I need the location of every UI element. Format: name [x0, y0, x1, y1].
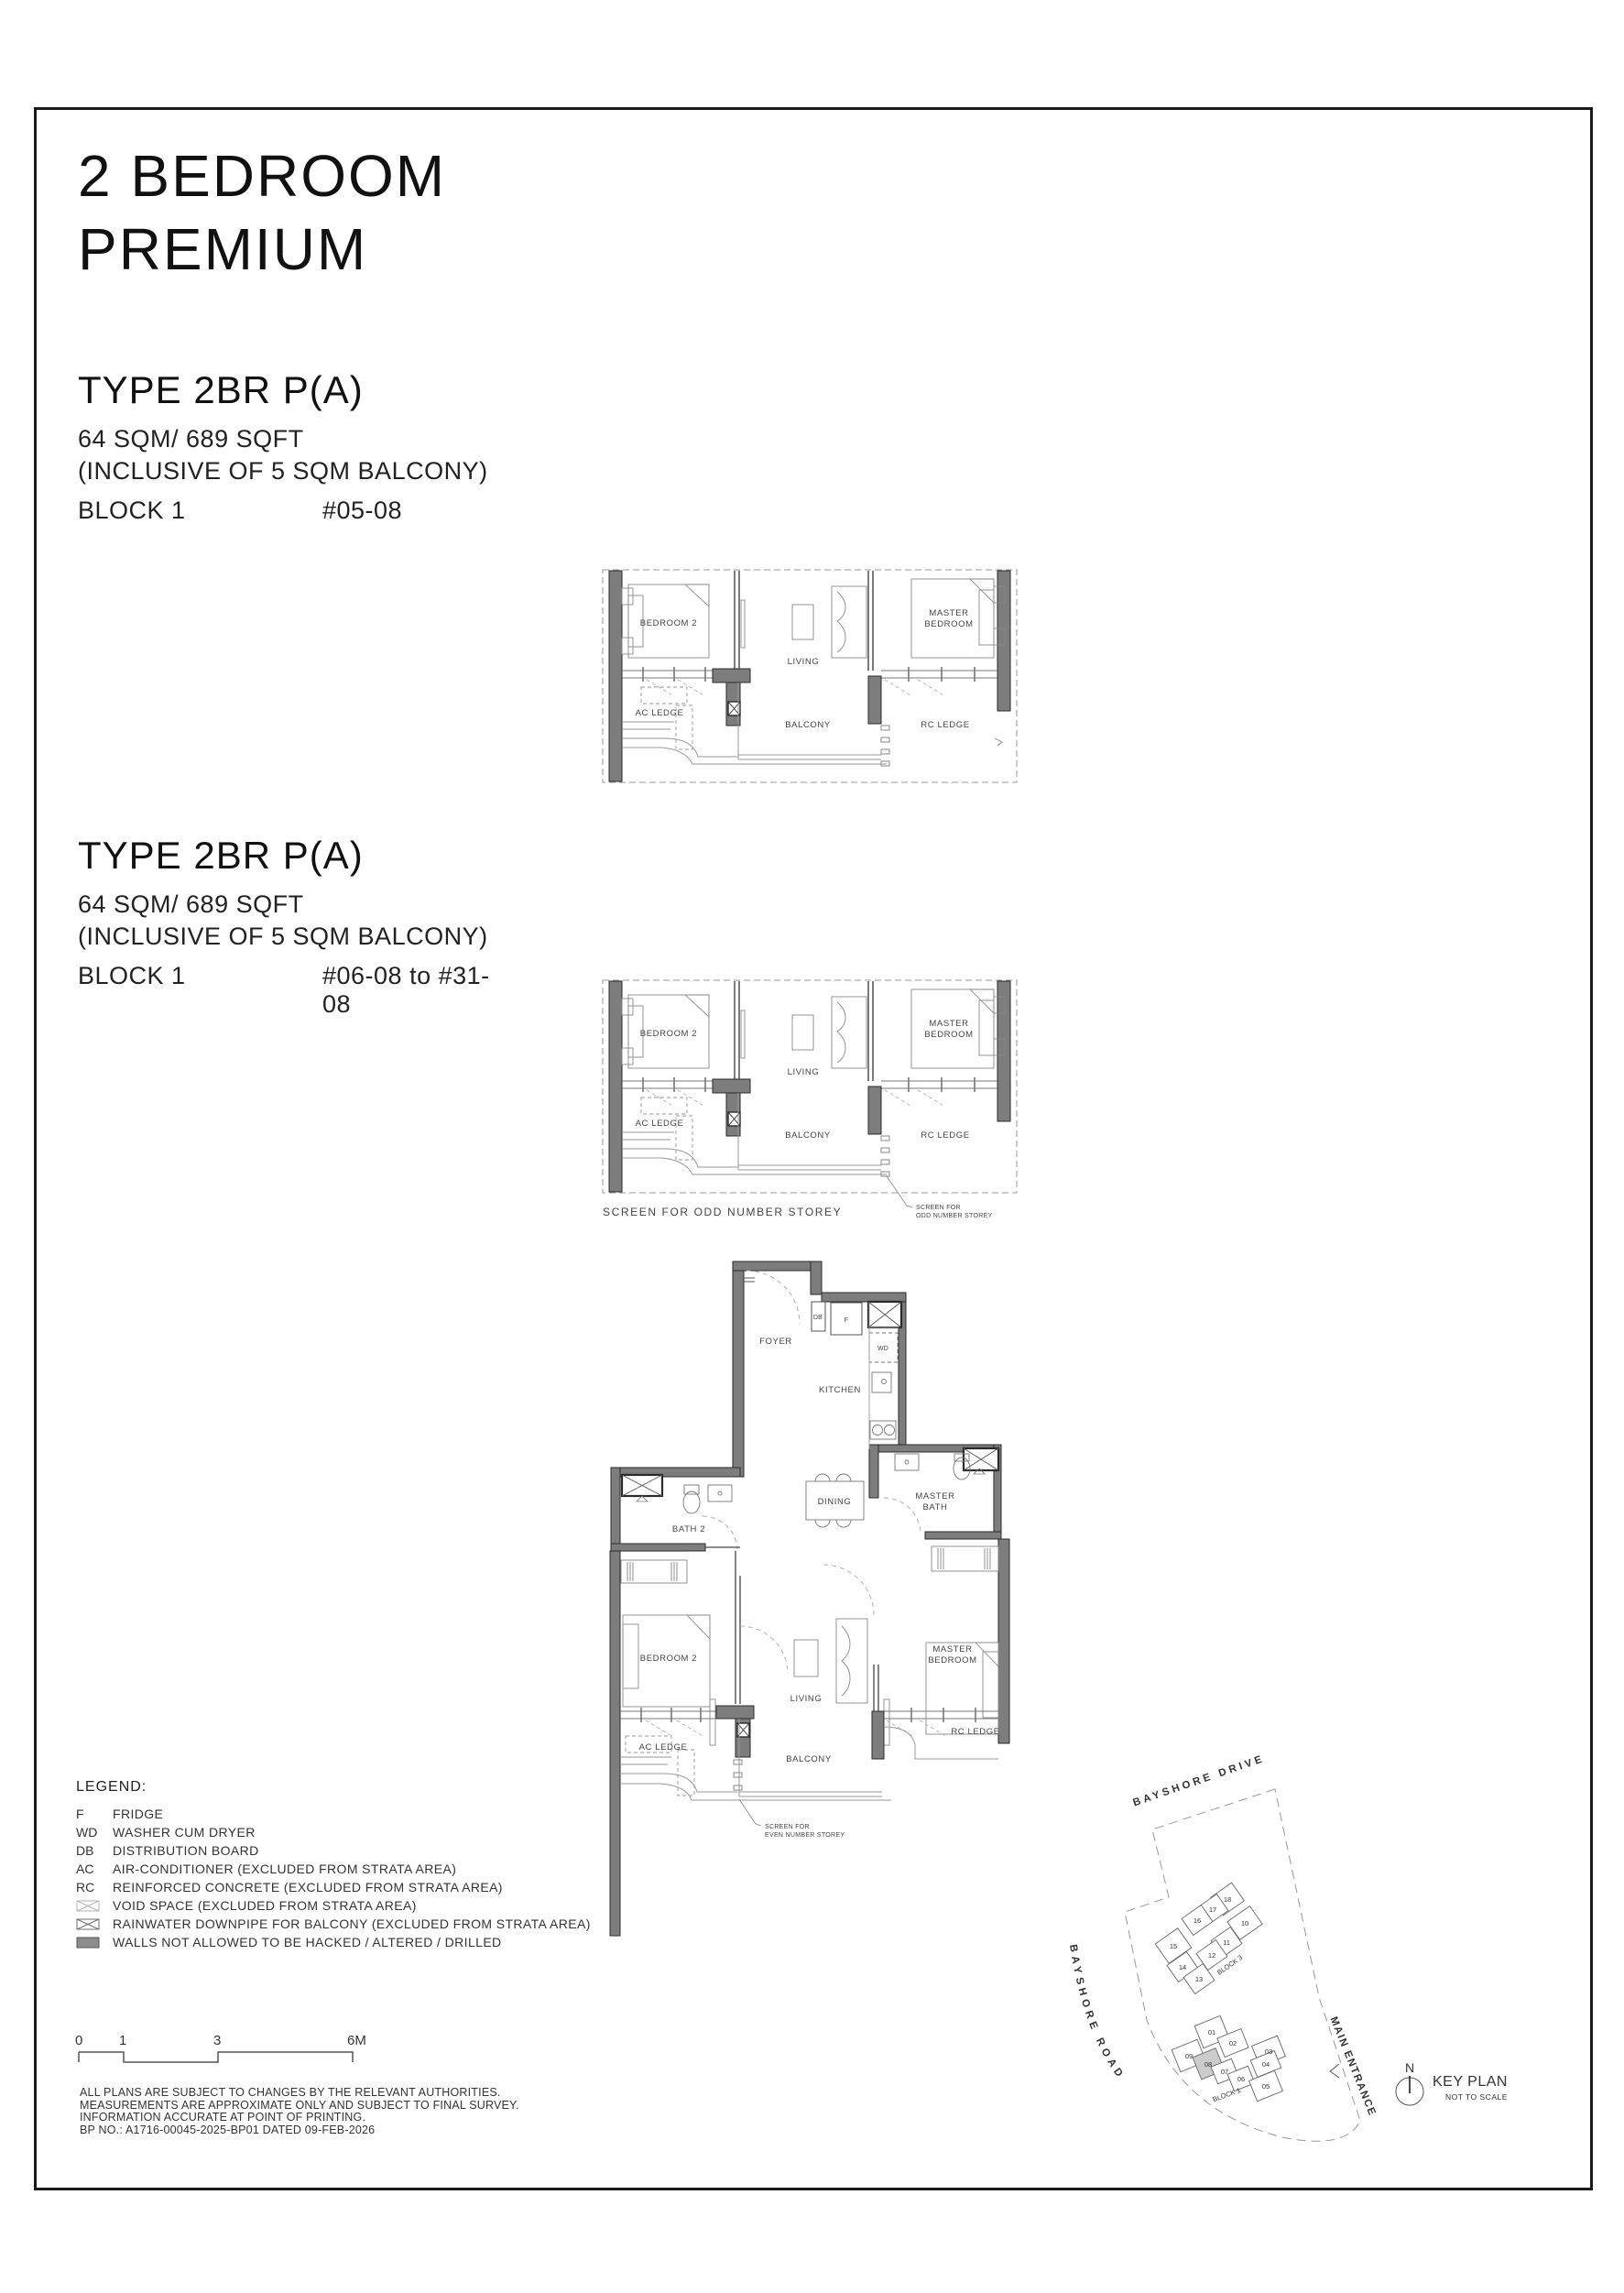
keyplan-subtitle: NOT TO SCALE: [1445, 2092, 1508, 2102]
legend-desc-walls: WALLS NOT ALLOWED TO BE HACKED / ALTERED…: [113, 1935, 502, 1949]
block1-label: BLOCK 1: [1212, 2086, 1242, 2103]
entrance-door-arc: [747, 1271, 800, 1324]
living-furniture: [741, 586, 866, 658]
legend-row-rc: RC REINFORCED CONCRETE (EXCLUDED FROM ST…: [76, 1878, 591, 1896]
plan2-ac-ledge-label: AC LEDGE: [636, 1119, 684, 1129]
scale-bar: 0 1 3 6M: [73, 2032, 376, 2072]
bath2-fixtures: [683, 1485, 737, 1549]
bayshore-drive-label: BAYSHORE DRIVE: [1131, 1753, 1266, 1809]
screen-leader-line: [887, 1176, 912, 1207]
scale-1: 1: [119, 2033, 126, 2048]
screen-ticks: [881, 1136, 889, 1176]
plan2-master-label2: BEDROOM: [924, 1030, 973, 1040]
master-bath-label1: MASTER: [915, 1491, 954, 1501]
plan1-living-label: LIVING: [788, 657, 820, 667]
main-bedroom2-label: BEDROOM 2: [640, 1654, 697, 1664]
partial-plan-05-08: BEDROOM 2 LIVING MASTER BEDROOM AC LEDGE…: [601, 568, 1019, 788]
plan1-balcony-label: BALCONY: [785, 720, 831, 730]
svg-text:09: 09: [1185, 2052, 1193, 2060]
disclaimer-line1: ALL PLANS ARE SUBJECT TO CHANGES BY THE …: [80, 2087, 519, 2100]
center-column: [713, 669, 750, 726]
svg-text:16: 16: [1193, 1916, 1201, 1925]
svg-text:17: 17: [1209, 1905, 1216, 1914]
main-master-label1: MASTER: [932, 1644, 972, 1654]
disclaimer: ALL PLANS ARE SUBJECT TO CHANGES BY THE …: [80, 2087, 519, 2136]
plan1-rc-ledge-label: RC LEDGE: [921, 720, 969, 730]
master-bath-label2: BATH: [922, 1502, 947, 1512]
type2-spec: TYPE 2BR P(A) 64 SQM/ 689 SQFT (INCLUSIV…: [78, 834, 499, 990]
plan1-master-label2: BEDROOM: [924, 619, 973, 629]
legend-desc-wd: WASHER CUM DRYER: [113, 1825, 256, 1840]
left-wall: [609, 981, 622, 1192]
ledge-outline: [622, 1093, 887, 1174]
screen-odd-caption: SCREEN FOR ODD NUMBER STOREY: [603, 1206, 842, 1218]
svg-text:15: 15: [1170, 1942, 1177, 1950]
scale-bar-line: [79, 2052, 353, 2062]
svg-text:06: 06: [1237, 2075, 1245, 2083]
floorplan-page: 2 BEDROOM PREMIUM TYPE 2BR P(A) 64 SQM/ …: [0, 0, 1624, 2293]
screen-even-note1: SCREEN FOR: [765, 1824, 810, 1830]
balcony-column: [868, 676, 881, 724]
db-label: DB: [813, 1315, 823, 1321]
type2-block: BLOCK 1: [78, 962, 186, 989]
type2-units: #06-08 to #31-08: [322, 962, 499, 1019]
screen-leader-line: [739, 1799, 761, 1826]
center-column: [713, 1079, 750, 1136]
disclaimer-line4: BP NO.: A1716-00045-2025-BP01 DATED 09-F…: [80, 2124, 519, 2137]
kitchen-label: KITCHEN: [819, 1385, 861, 1395]
svg-text:07: 07: [1221, 2068, 1228, 2076]
fridge-label: F: [845, 1317, 849, 1324]
scale-3: 3: [213, 2033, 221, 2048]
type1-units: #05-08: [322, 497, 402, 525]
main-entrance-arrow: [1330, 2064, 1339, 2078]
page-title-line2: PREMIUM: [78, 213, 446, 286]
master-bed: [911, 989, 1005, 1068]
screen-odd-note2: ODD NUMBER STOREY: [916, 1213, 993, 1219]
svg-text:02: 02: [1229, 2039, 1237, 2047]
page-title: 2 BEDROOM PREMIUM: [78, 139, 446, 286]
svg-text:14: 14: [1179, 1963, 1186, 1971]
legend-heading: LEGEND:: [76, 1779, 591, 1796]
bayshore-road-label: BAYSHORE ROAD: [1067, 1944, 1127, 2082]
type2-area-note: (INCLUSIVE OF 5 SQM BALCONY): [78, 923, 499, 951]
balcony-level: [620, 1706, 998, 1826]
scale-6m: 6M: [347, 2033, 366, 2048]
legend-abbr-wd: WD: [76, 1825, 113, 1840]
type1-area: 64 SQM/ 689 SQFT: [78, 425, 499, 453]
legend-abbr-f: F: [76, 1807, 113, 1821]
north-label: N: [1405, 2060, 1414, 2075]
svg-text:01: 01: [1208, 2028, 1215, 2036]
svg-text:04: 04: [1262, 2060, 1270, 2069]
legend-row-ac: AC AIR-CONDITIONER (EXCLUDED FROM STRATA…: [76, 1860, 591, 1878]
type2-area: 64 SQM/ 689 SQFT: [78, 890, 499, 919]
plan1-master-label1: MASTER: [929, 608, 968, 618]
key-plan: BAYSHORE DRIVE BAYSHORE ROAD MAIN ENTRAN…: [1044, 1727, 1566, 2167]
dining-label: DINING: [818, 1497, 852, 1507]
void-space-icon: [76, 1900, 100, 1912]
rainwater-downpipe-icon: [76, 1918, 100, 1930]
right-wall: [997, 981, 1010, 1121]
legend-abbr-rc: RC: [76, 1880, 113, 1894]
protected-wall-icon: [76, 1937, 100, 1949]
living-furniture: [794, 1619, 867, 1703]
plan2-master-label1: MASTER: [929, 1019, 968, 1029]
foyer-label: FOYER: [759, 1337, 792, 1347]
type1-heading: TYPE 2BR P(A): [78, 368, 499, 412]
main-floor-plan: FOYER KITCHEN DB F WD DINING BATH 2 MAST…: [600, 1241, 1021, 1956]
page-title-line1: 2 BEDROOM: [78, 139, 446, 213]
wardrobes: [621, 1546, 998, 1583]
main-ac-ledge-label: AC LEDGE: [639, 1742, 688, 1753]
screen-odd-note1: SCREEN FOR: [916, 1205, 961, 1211]
scale-0: 0: [75, 2033, 82, 2048]
legend-row-db: DB DISTRIBUTION BOARD: [76, 1841, 591, 1860]
main-living-label: LIVING: [790, 1694, 823, 1704]
legend-desc-ac: AIR-CONDITIONER (EXCLUDED FROM STRATA AR…: [113, 1862, 456, 1876]
type2-heading: TYPE 2BR P(A): [78, 834, 499, 878]
entrance-door-leaf: [744, 1278, 755, 1282]
keyplan-title: KEY PLAN: [1433, 2074, 1508, 2090]
left-wall: [609, 571, 622, 781]
plan2-rc-ledge-label: RC LEDGE: [921, 1130, 969, 1141]
main-balcony-label: BALCONY: [786, 1754, 832, 1764]
disclaimer-line3: INFORMATION ACCURATE AT POINT OF PRINTIN…: [80, 2112, 519, 2124]
plan1-drawing: [603, 570, 1017, 782]
svg-text:18: 18: [1224, 1895, 1231, 1904]
type1-spec: TYPE 2BR P(A) 64 SQM/ 689 SQFT (INCLUSIV…: [78, 368, 499, 525]
wd-label: WD: [877, 1346, 888, 1352]
door-arcs: [740, 1565, 874, 1674]
svg-text:12: 12: [1208, 1951, 1215, 1960]
bedroom2-furniture: [623, 1615, 715, 1745]
svg-text:08: 08: [1204, 2060, 1212, 2069]
living-furniture: [741, 997, 866, 1068]
svg-text:13: 13: [1195, 1975, 1203, 1983]
legend-row-void: VOID SPACE (EXCLUDED FROM STRATA AREA): [76, 1896, 591, 1915]
screen-ticks: [881, 726, 889, 766]
legend-desc-fridge: FRIDGE: [113, 1807, 163, 1821]
block3-cluster: [1155, 1883, 1262, 1993]
bath2-label: BATH 2: [672, 1524, 705, 1534]
svg-text:05: 05: [1262, 2082, 1270, 2091]
svg-text:03: 03: [1265, 2047, 1272, 2056]
master-bed: [911, 579, 1005, 658]
legend-abbr-ac: AC: [76, 1862, 113, 1876]
legend-desc-rainwater: RAINWATER DOWNPIPE FOR BALCONY (EXCLUDED…: [113, 1916, 591, 1931]
screen-even-note2: EVEN NUMBER STOREY: [765, 1832, 845, 1839]
plan2-balcony-label: BALCONY: [785, 1130, 831, 1141]
plan2-living-label: LIVING: [788, 1067, 820, 1077]
legend-abbr-db: DB: [76, 1843, 113, 1858]
type1-area-note: (INCLUSIVE OF 5 SQM BALCONY): [78, 457, 499, 486]
partial-plan-06-08: BEDROOM 2 LIVING MASTER BEDROOM AC LEDGE…: [601, 978, 1019, 1228]
svg-text:10: 10: [1241, 1919, 1248, 1927]
plan1-bedroom2-label: BEDROOM 2: [640, 618, 697, 628]
main-rc-ledge-label: RC LEDGE: [951, 1727, 999, 1737]
svg-text:11: 11: [1223, 1938, 1230, 1947]
right-wall: [997, 571, 1010, 711]
disclaimer-line2: MEASUREMENTS ARE APPROXIMATE ONLY AND SU…: [80, 2100, 519, 2113]
legend-desc-db: DISTRIBUTION BOARD: [113, 1843, 259, 1858]
balcony-column: [868, 1086, 881, 1134]
legend-row-wd: WD WASHER CUM DRYER: [76, 1823, 591, 1841]
ledge-outline: [622, 682, 887, 764]
plan2-drawing: [603, 980, 1017, 1207]
legend: LEGEND: F FRIDGE WD WASHER CUM DRYER DB …: [76, 1779, 591, 1951]
plan1-ac-ledge-label: AC LEDGE: [636, 708, 684, 718]
main-master-label2: BEDROOM: [928, 1655, 976, 1665]
legend-row-fridge: F FRIDGE: [76, 1805, 591, 1823]
type1-block-line: BLOCK 1 #05-08: [78, 497, 499, 525]
north-arrow-icon: N: [1396, 2060, 1423, 2105]
type2-block-line: BLOCK 1 #06-08 to #31-08: [78, 962, 499, 990]
legend-row-rainwater: RAINWATER DOWNPIPE FOR BALCONY (EXCLUDED…: [76, 1915, 591, 1933]
legend-desc-void: VOID SPACE (EXCLUDED FROM STRATA AREA): [113, 1898, 417, 1913]
type1-block: BLOCK 1: [78, 497, 186, 524]
room-dividers: [620, 1547, 878, 1711]
legend-row-walls: WALLS NOT ALLOWED TO BE HACKED / ALTERED…: [76, 1933, 591, 1951]
legend-desc-rc: REINFORCED CONCRETE (EXCLUDED FROM STRAT…: [113, 1880, 503, 1894]
plan2-bedroom2-label: BEDROOM 2: [640, 1029, 697, 1039]
